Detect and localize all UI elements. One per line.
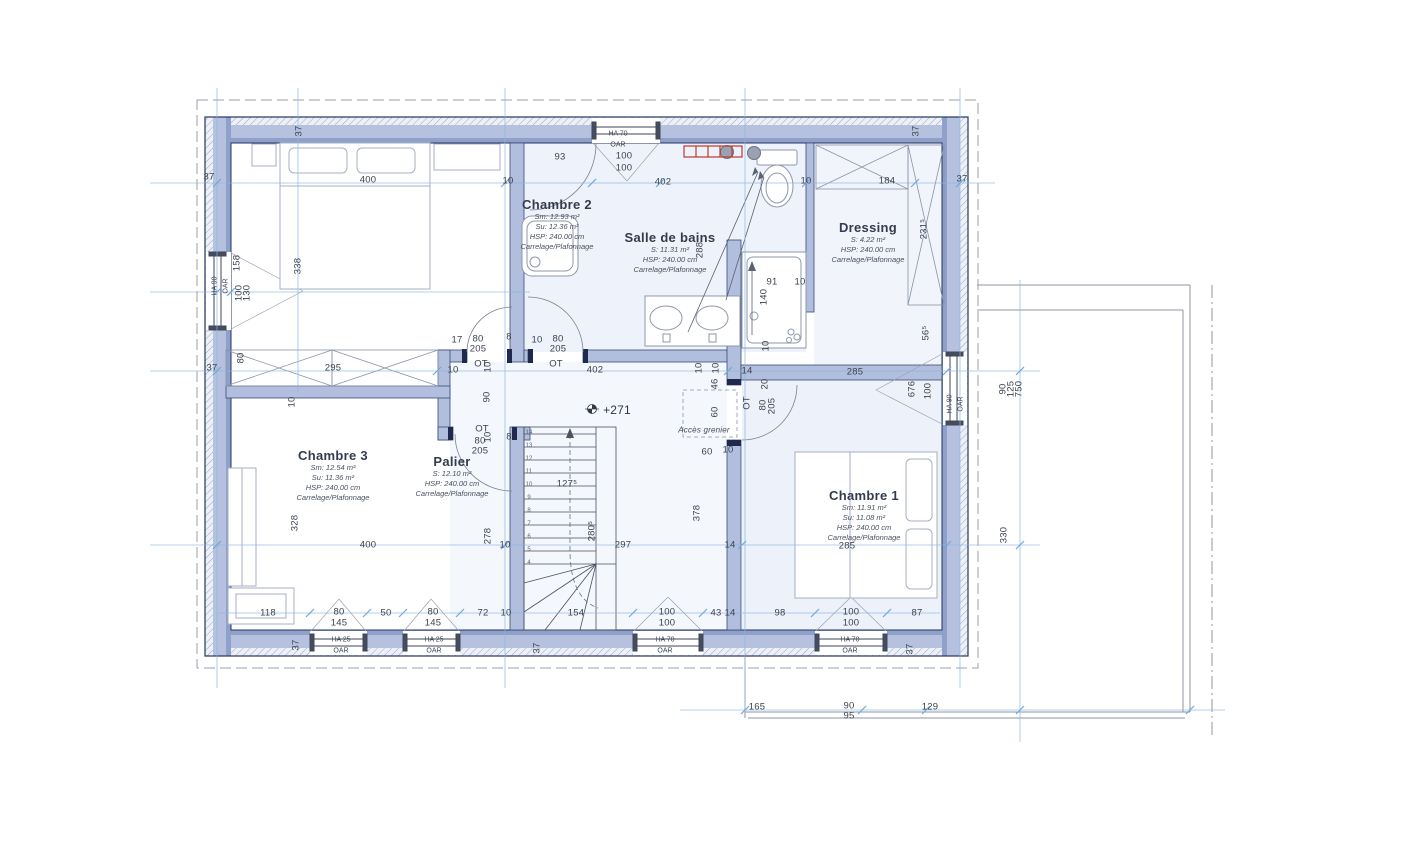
desk-chambre-3 [228,588,294,624]
floor-plan-canvas: Chambre 2Sm: 12.93 m²Su: 12.36 m²HSP: 24… [0,0,1404,859]
bed-chambre-1 [795,452,937,598]
wardrobe-chambre-3 [228,468,256,586]
nightstand [252,144,276,166]
shower-tub [522,216,578,276]
dresser [434,144,500,170]
bed-chambre-2 [252,143,500,289]
window-bottom-1 [310,599,367,655]
floor-plan-drawing [0,0,1404,859]
